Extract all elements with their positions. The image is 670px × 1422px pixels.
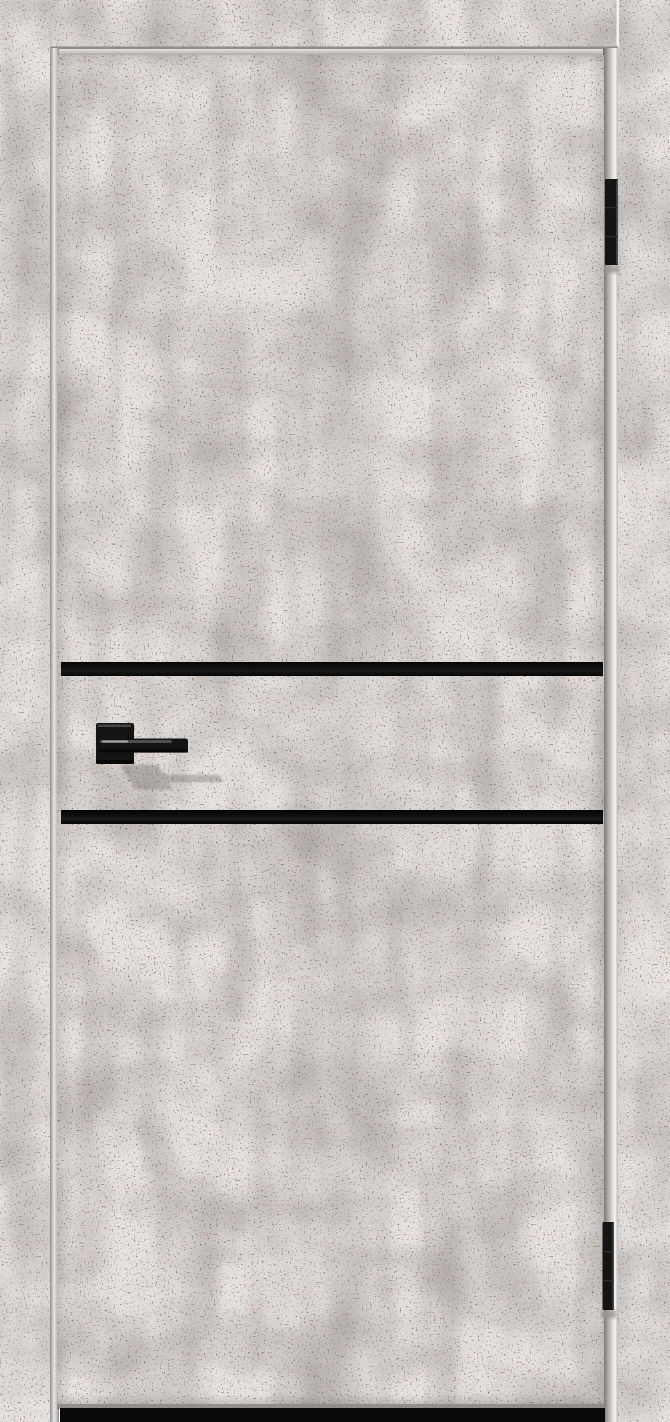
leaf-edge-shade-left	[57, 55, 73, 1408]
leaf-edge-shade-top	[57, 55, 604, 67]
hinge-bottom-knuckle-line-2	[603, 1280, 615, 1281]
handle-lever-glint	[102, 741, 128, 743]
hinge-top-shadow	[604, 265, 619, 273]
door-leaf	[57, 55, 604, 1408]
door-product-photo	[0, 0, 670, 1422]
handle-lever-underside	[98, 750, 188, 753]
hinge-top-knuckle-line-1	[605, 207, 618, 208]
floor-gap-dark	[60, 1408, 605, 1422]
glass-stripe-bottom	[61, 810, 603, 824]
floor-gap	[57, 1404, 605, 1422]
door-photo-svg	[0, 0, 670, 1422]
leaf-edge-shade-right	[588, 55, 604, 1408]
casing-left-sheen	[0, 0, 52, 1422]
handle-rosette-highlight	[98, 725, 131, 728]
hinge-top	[604, 179, 619, 273]
hinge-top-bar	[605, 179, 618, 265]
glass-stripe-top	[61, 662, 603, 676]
leaf-center-streak	[285, 55, 405, 1408]
hinge-bottom-shadow	[601, 1310, 616, 1318]
hinge-top-knuckle-line-2	[605, 236, 618, 237]
casing-joint-left	[50, 0, 52, 48]
handle-shadow-lever	[128, 775, 224, 783]
glass-stripe-bottom-gloss	[61, 810, 603, 824]
hinge-bottom-bar	[603, 1222, 615, 1310]
hinge-top-edge-highlight	[616, 180, 618, 264]
handle-rosette-bottom-shade	[96, 760, 134, 764]
casing-joint-right	[617, 0, 620, 48]
casing-right-sheen	[618, 0, 670, 1422]
glass-stripe-top-gloss	[61, 662, 603, 676]
casing-top	[52, 0, 618, 48]
hinge-bottom-edge-highlight	[612, 1223, 614, 1309]
hinge-bottom	[601, 1222, 616, 1318]
seam-top-band	[50, 49, 618, 56]
seam-top-dark-line	[50, 47, 618, 50]
hinge-bottom-knuckle-line-1	[603, 1251, 615, 1252]
